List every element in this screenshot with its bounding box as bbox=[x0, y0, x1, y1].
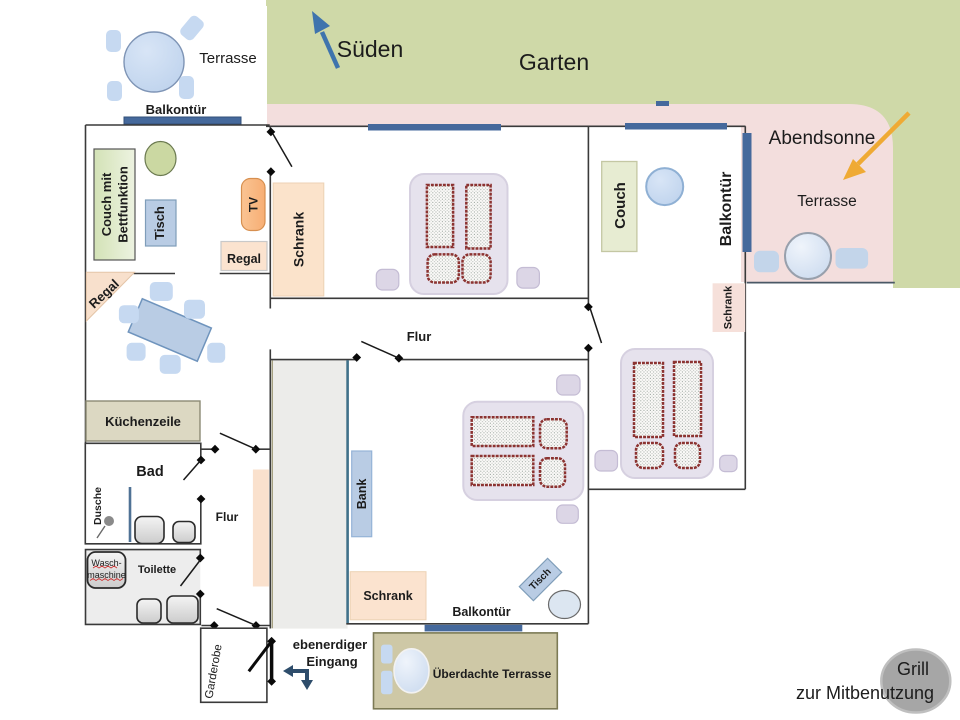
svg-text:Bank: Bank bbox=[355, 479, 369, 510]
svg-text:TV: TV bbox=[247, 197, 261, 212]
svg-text:Terrasse: Terrasse bbox=[199, 50, 257, 67]
svg-text:Regal: Regal bbox=[227, 252, 261, 266]
svg-text:Couch mit: Couch mit bbox=[99, 172, 114, 236]
svg-text:Flur: Flur bbox=[407, 329, 432, 344]
svg-text:Tisch: Tisch bbox=[152, 206, 167, 240]
svg-text:zur Mitbenutzung: zur Mitbenutzung bbox=[796, 683, 934, 703]
svg-text:Schrank: Schrank bbox=[363, 589, 412, 603]
svg-text:Abendsonne: Abendsonne bbox=[769, 128, 876, 149]
svg-text:Balkontür: Balkontür bbox=[452, 605, 510, 619]
svg-text:Terrasse: Terrasse bbox=[797, 193, 856, 210]
svg-text:Dusche: Dusche bbox=[92, 487, 104, 525]
svg-text:Küchenzeile: Küchenzeile bbox=[105, 414, 181, 429]
svg-text:Bettfunktion: Bettfunktion bbox=[116, 166, 131, 243]
svg-text:Balkontür: Balkontür bbox=[718, 172, 735, 247]
svg-text:Toilette: Toilette bbox=[138, 564, 176, 576]
svg-text:Überdachte Terrasse: Überdachte Terrasse bbox=[433, 666, 552, 681]
svg-text:Bad: Bad bbox=[136, 464, 163, 480]
svg-text:Schrank: Schrank bbox=[723, 285, 735, 329]
svg-text:Schrank: Schrank bbox=[291, 212, 307, 267]
svg-text:Couch: Couch bbox=[612, 182, 629, 229]
svg-text:Eingang: Eingang bbox=[306, 654, 357, 669]
svg-text:Balkontür: Balkontür bbox=[146, 102, 207, 117]
svg-text:Garten: Garten bbox=[519, 49, 589, 75]
svg-text:ebenerdiger: ebenerdiger bbox=[293, 637, 367, 652]
svg-text:Süden: Süden bbox=[337, 36, 404, 62]
svg-text:Grill: Grill bbox=[897, 659, 929, 679]
svg-text:Flur: Flur bbox=[216, 510, 239, 524]
